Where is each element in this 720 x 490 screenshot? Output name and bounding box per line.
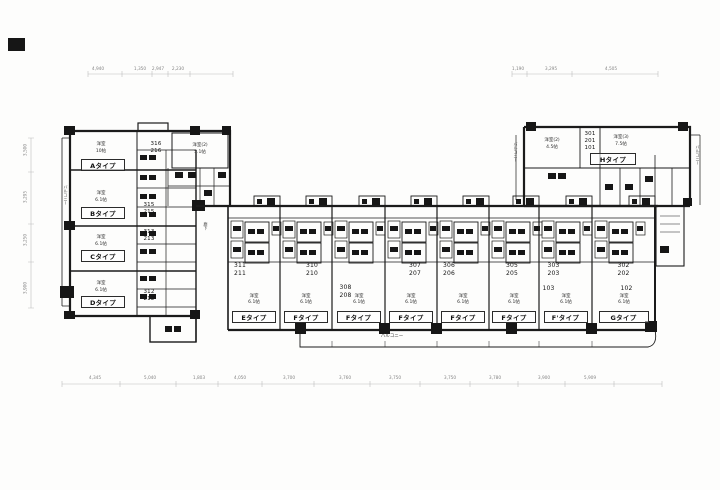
- unit-interior-marks: [440, 198, 490, 263]
- room-size: 6.1帖: [95, 242, 107, 247]
- room-label: 洋室: [96, 281, 105, 286]
- unit-interior-marks: [283, 198, 333, 263]
- room-number: 208: [339, 293, 351, 299]
- dimension-label: 2,947: [152, 67, 164, 72]
- unit-type-label: Fタイプ: [284, 311, 328, 323]
- room-size: 6.1帖: [95, 288, 107, 293]
- unit-interior-marks: [542, 198, 592, 263]
- room-size: 10帖: [96, 149, 106, 154]
- room-number: 302: [617, 263, 629, 269]
- h-room3-label: 洋室(3): [613, 135, 628, 140]
- dimension-label: 3,900: [538, 376, 550, 381]
- unit-type-label: Bタイプ: [81, 207, 125, 219]
- corridor-label: 廊下: [203, 222, 207, 230]
- balcony-label-left-wing: バルコニー: [63, 185, 67, 205]
- unit-interior-marks: [492, 198, 542, 263]
- room-number: 308: [339, 285, 351, 291]
- dimension-label: 3,900: [24, 282, 29, 294]
- room-label: 洋室: [619, 294, 628, 299]
- room-number: 307: [409, 263, 421, 269]
- balcony-label-right-wing-left: バルコニー: [513, 142, 517, 162]
- room-number: 101: [584, 146, 595, 152]
- dimension-label: 3,295: [24, 191, 29, 203]
- room-label: 洋室: [96, 191, 105, 196]
- dimension-label: 1,350: [134, 67, 146, 72]
- room-size: 6.1帖: [95, 198, 107, 203]
- room-number: 202: [617, 271, 629, 277]
- room-number: 210: [306, 271, 318, 277]
- unit-interior-marks: [595, 198, 650, 263]
- room-number: 315: [143, 203, 154, 209]
- unit-type-label-h: Hタイプ: [590, 153, 636, 165]
- right-wing-walls: [516, 127, 700, 266]
- room-size: 6.1帖: [300, 300, 312, 305]
- room-number: 305: [506, 263, 518, 269]
- dimension-label: 3,760: [339, 376, 351, 381]
- room-number: 213: [143, 237, 154, 243]
- room-label: 洋室: [301, 294, 310, 299]
- unit-type-label: Aタイプ: [81, 159, 125, 171]
- unit-interior-marks: [335, 198, 385, 263]
- room-number: 207: [409, 271, 421, 277]
- room-size: 6.1帖: [508, 300, 520, 305]
- dimension-label: 4,940: [92, 67, 104, 72]
- unit-type-label: Fタイプ: [441, 311, 485, 323]
- room-size: 6.1帖: [353, 300, 365, 305]
- dimension-label: 3,295: [545, 67, 557, 72]
- room-number: 303: [547, 263, 559, 269]
- dimension-label: 1,190: [512, 67, 524, 72]
- room-label: 洋室: [249, 294, 258, 299]
- h-room3-size: 7.5帖: [615, 142, 627, 147]
- room-size: 6.1帖: [618, 300, 630, 305]
- unit-interior-marks: [388, 198, 438, 263]
- room-size: 6.1帖: [248, 300, 260, 305]
- room-size: 6.1帖: [405, 300, 417, 305]
- room-label: 洋室: [406, 294, 415, 299]
- upper-room-size: 5.1帖: [194, 150, 206, 155]
- room-size: 6.1帖: [560, 300, 572, 305]
- unit-type-label: Fタイプ: [337, 311, 381, 323]
- unit-type-label: Dタイプ: [81, 296, 125, 308]
- room-number-1f: 102: [620, 286, 632, 292]
- room-number: 306: [443, 263, 455, 269]
- h-room2-label: 洋室(2): [544, 138, 559, 143]
- dimension-label: 3,250: [24, 234, 29, 246]
- room-number: 301: [584, 132, 595, 138]
- room-number-1f: 103: [542, 286, 554, 292]
- dimension-label: 3,780: [489, 376, 501, 381]
- room-number: 312: [143, 290, 154, 296]
- room-label: 洋室: [354, 294, 363, 299]
- unit-type-label: F'タイプ: [544, 311, 588, 323]
- unit-type-label: Gタイプ: [599, 311, 649, 323]
- dimension-label: 5,040: [144, 376, 156, 381]
- unit-type-label: Cタイプ: [81, 250, 125, 262]
- room-size: 6.1帖: [457, 300, 469, 305]
- room-number: 203: [547, 271, 559, 277]
- room-number: 206: [443, 271, 455, 277]
- unit-type-label: Fタイプ: [492, 311, 536, 323]
- room-label: 洋室: [561, 294, 570, 299]
- dimension-label: 2,230: [172, 67, 184, 72]
- dimension-label: 3,700: [283, 376, 295, 381]
- room-label: 洋室: [458, 294, 467, 299]
- room-number: 316: [150, 142, 161, 148]
- room-number: 215: [143, 210, 154, 216]
- upper-room-label: 洋室(2): [192, 143, 207, 148]
- dimension-label: 1,803: [193, 376, 205, 381]
- dimension-label: 5,909: [584, 376, 596, 381]
- room-label: 洋室: [96, 235, 105, 240]
- room-number: 205: [506, 271, 518, 277]
- room-number: 201: [584, 139, 595, 145]
- dimension-label: 4,050: [234, 376, 246, 381]
- balcony-label-right-wing-right: バルコニー: [695, 145, 699, 165]
- dimension-label: 4,505: [605, 67, 617, 72]
- floorplan-page: バルコニー 廊下 バルコニー バルコニー バルコニー 洋室(2) 5.1帖 洋室…: [0, 0, 720, 490]
- room-number: 311: [234, 263, 246, 269]
- unit-type-label: Fタイプ: [389, 311, 433, 323]
- h-room2-size: 4.5帖: [546, 145, 558, 150]
- dimension-label: 4,345: [89, 376, 101, 381]
- room-number: 216: [150, 149, 161, 155]
- room-number: 310: [306, 263, 318, 269]
- unit-interior-marks: [231, 198, 281, 263]
- dimension-label: 3,500: [24, 144, 29, 156]
- room-label: 洋室: [509, 294, 518, 299]
- room-label: 洋室: [96, 142, 105, 147]
- dimension-label: 3,750: [444, 376, 456, 381]
- room-number: 211: [234, 271, 246, 277]
- dimension-label: 3,750: [389, 376, 401, 381]
- unit-type-label: Eタイプ: [232, 311, 276, 323]
- room-number: 212: [143, 297, 154, 303]
- room-number: 313: [143, 230, 154, 236]
- balcony-label-bottom: バルコニー: [381, 334, 403, 339]
- floorplan-linework: [0, 0, 720, 490]
